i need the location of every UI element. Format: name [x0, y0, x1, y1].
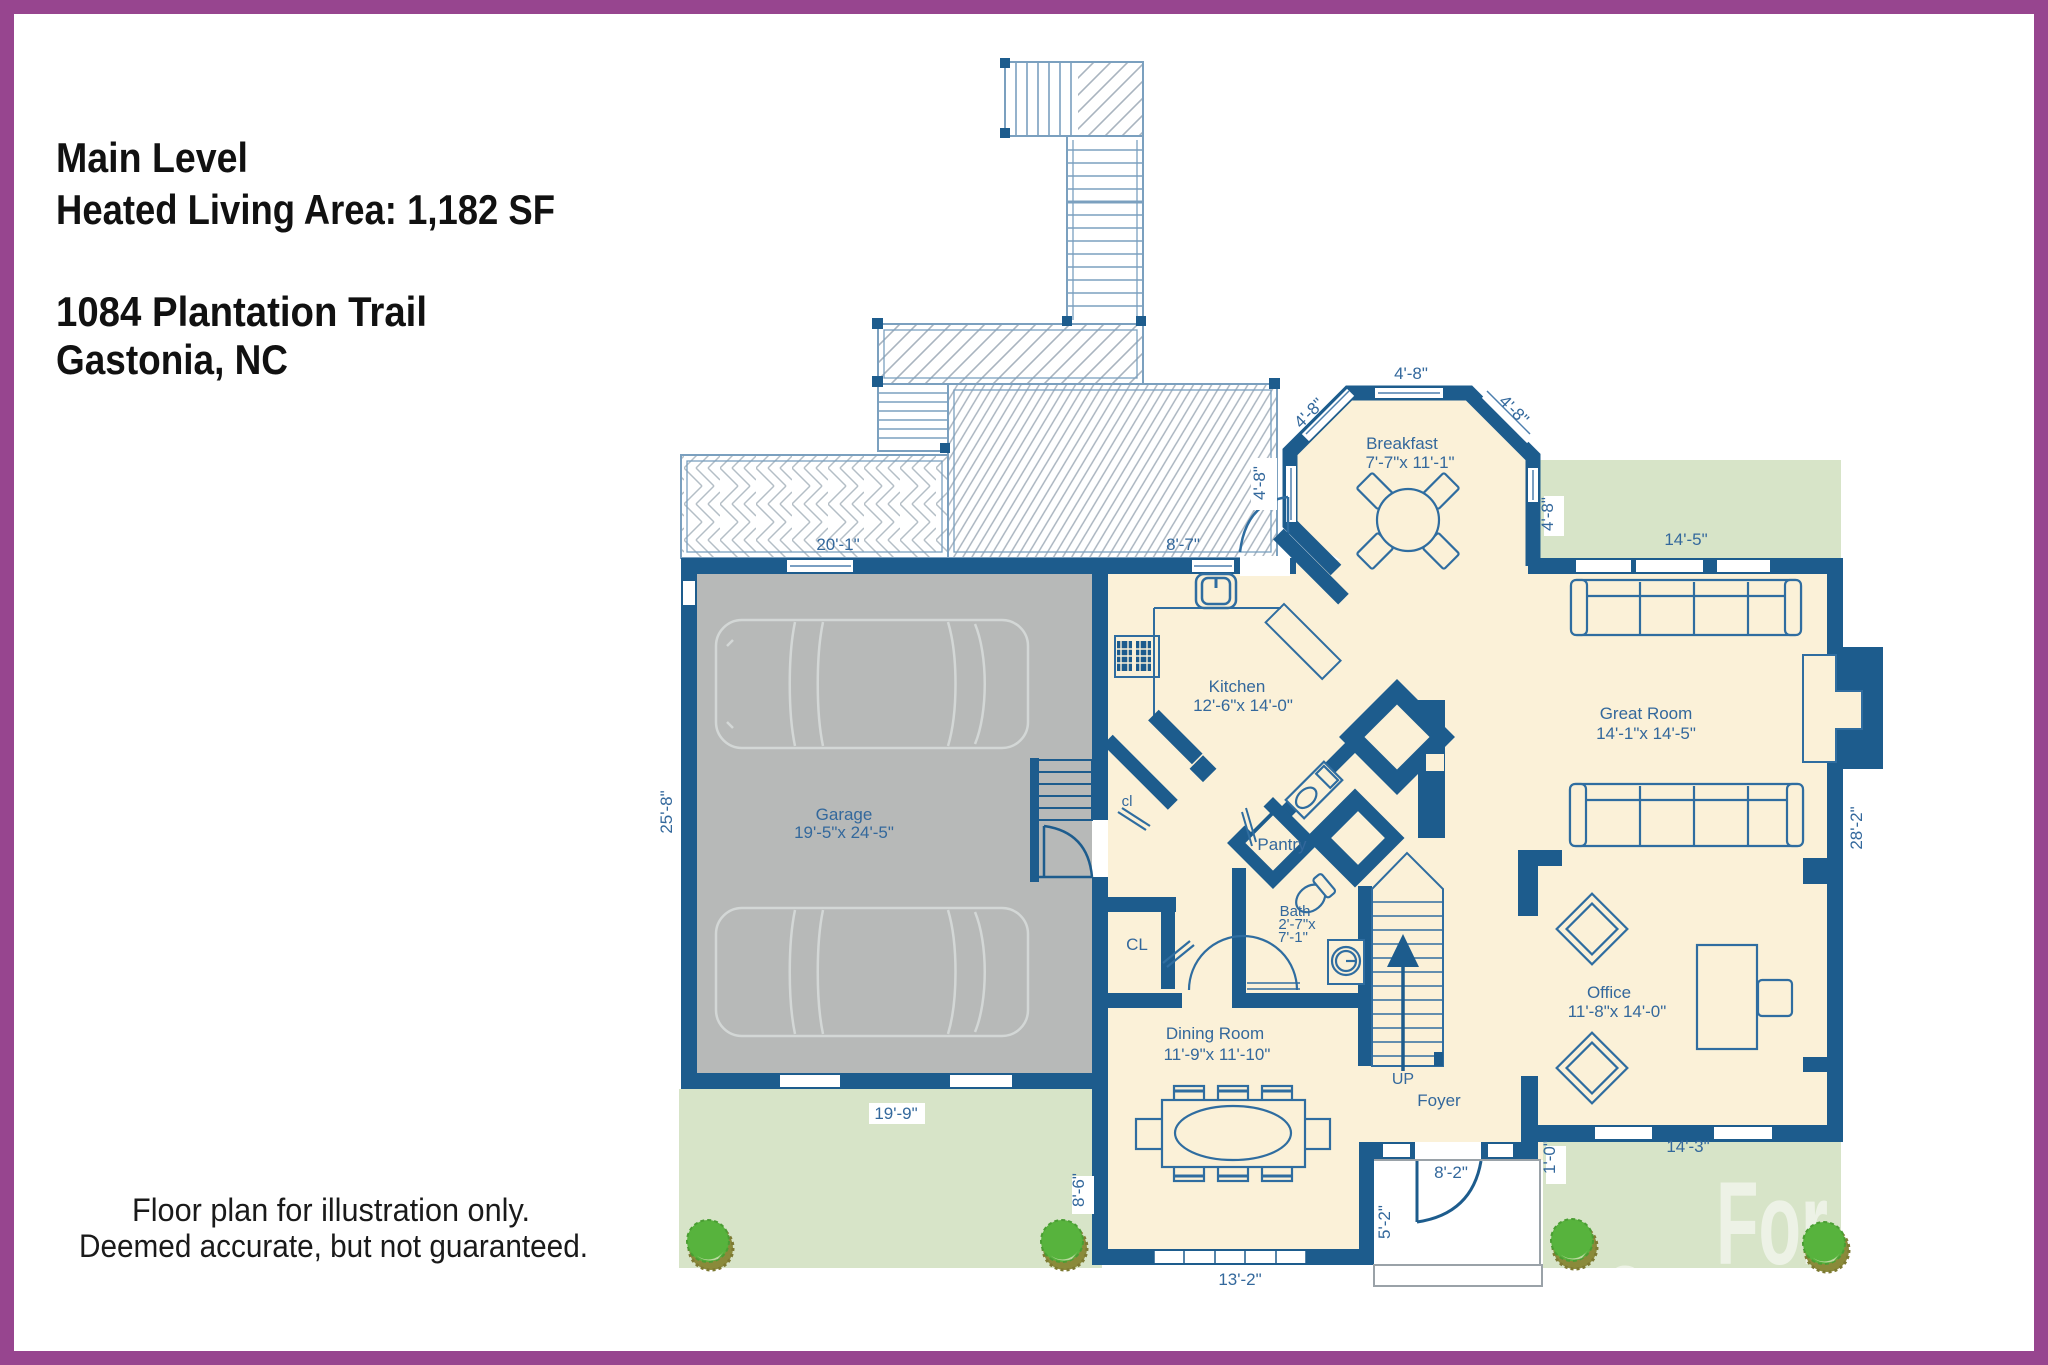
svg-text:25'-8": 25'-8"	[657, 790, 676, 833]
svg-text:14'-3": 14'-3"	[1666, 1137, 1709, 1156]
svg-text:8'-7": 8'-7"	[1166, 535, 1200, 554]
svg-text:Office: Office	[1587, 983, 1631, 1002]
svg-text:Pantry: Pantry	[1257, 835, 1307, 854]
svg-text:Foyer: Foyer	[1417, 1091, 1461, 1110]
svg-text:7'-1": 7'-1"	[1278, 929, 1308, 946]
svg-text:8'-6": 8'-6"	[1069, 1173, 1088, 1207]
svg-text:Kitchen: Kitchen	[1209, 677, 1266, 696]
svg-text:Garage: Garage	[816, 805, 873, 824]
svg-text:Great Room: Great Room	[1600, 704, 1693, 723]
svg-text:28'-2": 28'-2"	[1847, 806, 1866, 849]
svg-text:14'-1"x 14'-5": 14'-1"x 14'-5"	[1596, 724, 1696, 743]
svg-text:14'-5": 14'-5"	[1664, 530, 1707, 549]
svg-text:UP: UP	[1392, 1071, 1414, 1088]
svg-text:19'-5"x 24'-5": 19'-5"x 24'-5"	[794, 823, 894, 842]
svg-text:Main Level: Main Level	[56, 134, 248, 181]
svg-text:1084 Plantation Trail: 1084 Plantation Trail	[56, 288, 427, 335]
svg-text:Dining Room: Dining Room	[1166, 1024, 1264, 1043]
svg-text:12'-6"x 14'-0": 12'-6"x 14'-0"	[1193, 696, 1293, 715]
svg-text:11'-9"x 11'-10": 11'-9"x 11'-10"	[1164, 1045, 1271, 1064]
svg-text:cl: cl	[1122, 793, 1133, 810]
svg-text:4'-8": 4'-8"	[1250, 466, 1269, 500]
svg-text:Floor plan for illustration on: Floor plan for illustration only.	[132, 1192, 530, 1228]
svg-text:Breakfast: Breakfast	[1366, 434, 1438, 453]
svg-text:4'-8": 4'-8"	[1538, 497, 1557, 531]
svg-text:CL: CL	[1126, 935, 1148, 954]
svg-text:20'-1": 20'-1"	[816, 535, 859, 554]
svg-text:4'-8": 4'-8"	[1394, 364, 1428, 383]
svg-text:5'-2": 5'-2"	[1375, 1205, 1394, 1239]
svg-text:1'-0": 1'-0"	[1540, 1140, 1559, 1174]
svg-text:Deemed accurate, but not guara: Deemed accurate, but not guaranteed.	[79, 1228, 588, 1264]
svg-text:19'-9": 19'-9"	[874, 1104, 917, 1123]
svg-text:7'-7"x 11'-1": 7'-7"x 11'-1"	[1365, 453, 1454, 472]
svg-text:Gastonia, NC: Gastonia, NC	[56, 336, 288, 383]
svg-text:13'-2": 13'-2"	[1218, 1270, 1261, 1289]
svg-text:Heated Living Area: 1,182 SF: Heated Living Area: 1,182 SF	[56, 186, 555, 233]
svg-text:11'-8"x 14'-0": 11'-8"x 14'-0"	[1568, 1002, 1667, 1021]
svg-text:8'-2": 8'-2"	[1434, 1163, 1468, 1182]
